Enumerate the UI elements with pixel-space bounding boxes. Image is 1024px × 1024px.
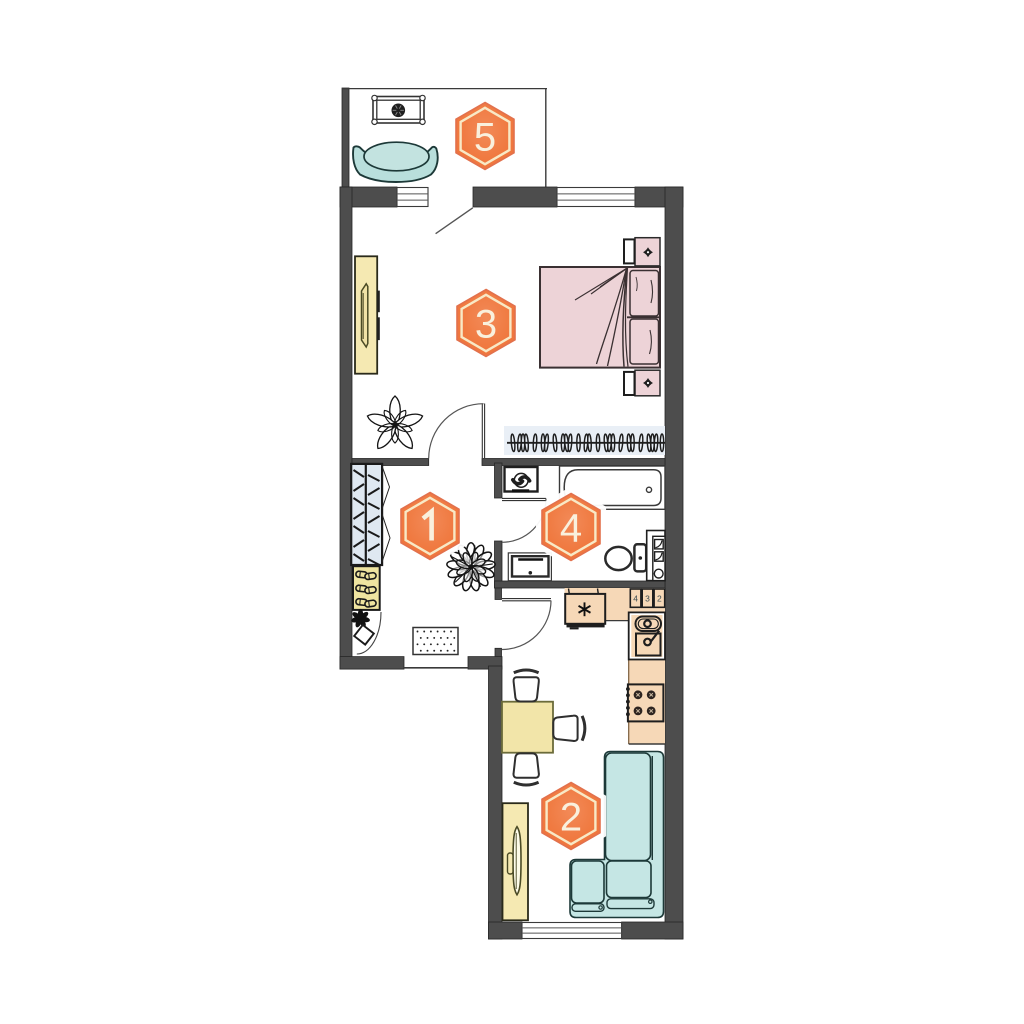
svg-text:3: 3 bbox=[475, 302, 497, 346]
svg-text:2: 2 bbox=[657, 593, 662, 603]
svg-text:3: 3 bbox=[645, 593, 650, 603]
svg-text:2: 2 bbox=[560, 795, 582, 839]
svg-text:4: 4 bbox=[633, 593, 638, 603]
svg-text:5: 5 bbox=[474, 115, 496, 159]
svg-text:4: 4 bbox=[560, 506, 582, 550]
